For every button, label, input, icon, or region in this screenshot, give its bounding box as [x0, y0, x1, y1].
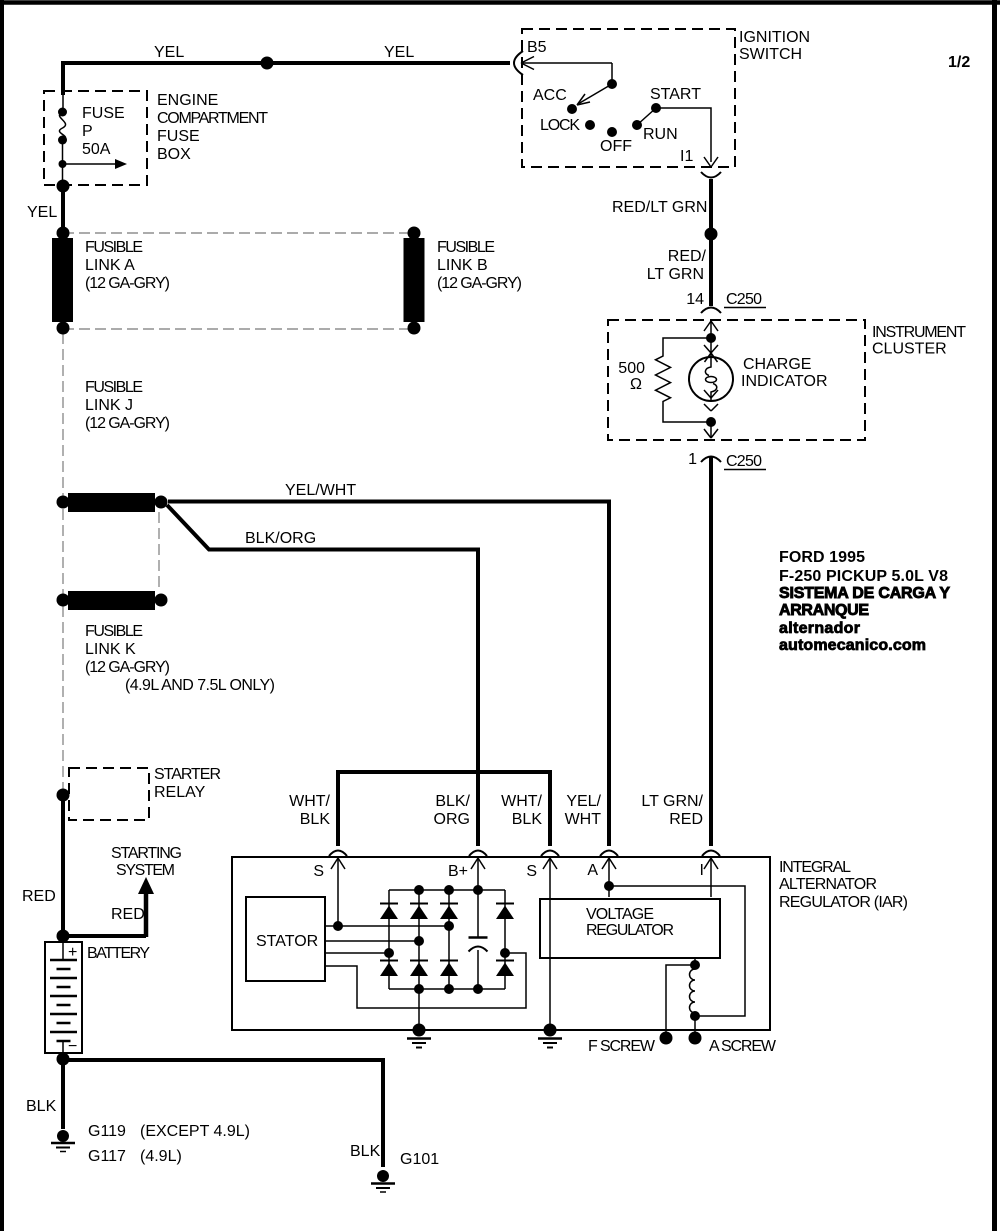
svg-text:C250: C250 [726, 453, 762, 470]
svg-text:LINK K: LINK K [85, 641, 136, 658]
svg-text:I1: I1 [680, 148, 693, 165]
svg-text:G101: G101 [400, 1151, 439, 1168]
svg-text:STATOR: STATOR [256, 933, 318, 950]
svg-text:FUSE: FUSE [157, 128, 200, 145]
svg-text:RUN: RUN [643, 126, 678, 143]
svg-text:START: START [650, 86, 701, 103]
svg-text:SWITCH: SWITCH [739, 46, 802, 63]
svg-text:1: 1 [688, 451, 697, 468]
svg-text:LINK B: LINK B [437, 257, 488, 274]
svg-text:BLK/: BLK/ [435, 793, 470, 810]
svg-text:B5: B5 [527, 39, 547, 56]
svg-text:BLK: BLK [26, 1098, 57, 1115]
svg-text:P: P [82, 123, 93, 140]
svg-text:OFF: OFF [600, 138, 632, 155]
svg-text:(12 GA-GRY): (12 GA-GRY) [85, 275, 170, 292]
svg-text:ENGINE: ENGINE [157, 92, 218, 109]
svg-text:BLK/ORG: BLK/ORG [245, 530, 316, 547]
svg-text:FORD 1995: FORD 1995 [779, 549, 865, 566]
svg-text:STARTER: STARTER [154, 766, 221, 783]
svg-text:FUSIBLE: FUSIBLE [85, 379, 143, 396]
svg-text:VOLTAGE: VOLTAGE [586, 906, 654, 923]
svg-text:A: A [587, 862, 598, 879]
svg-text:WHT/: WHT/ [501, 793, 542, 810]
svg-text:(12 GA-GRY): (12 GA-GRY) [85, 659, 170, 676]
svg-text:LINK A: LINK A [85, 257, 135, 274]
svg-text:REGULATOR (IAR): REGULATOR (IAR) [779, 894, 908, 911]
svg-text:COMPARTMENT: COMPARTMENT [157, 110, 268, 127]
svg-text:LT GRN/: LT GRN/ [641, 793, 703, 810]
svg-text:YEL: YEL [27, 204, 57, 221]
svg-text:LINK J: LINK J [85, 397, 133, 414]
svg-text:RELAY: RELAY [154, 784, 206, 801]
svg-text:I: I [700, 862, 704, 879]
svg-text:ALTERNATOR: ALTERNATOR [779, 876, 877, 893]
svg-text:(4.9L): (4.9L) [140, 1148, 182, 1165]
svg-text:ARRANQUE: ARRANQUE [779, 602, 869, 619]
svg-text:(EXCEPT 4.9L): (EXCEPT 4.9L) [140, 1123, 250, 1140]
svg-text:BLK: BLK [512, 811, 543, 828]
svg-text:G119: G119 [88, 1123, 126, 1140]
svg-text:LT GRN: LT GRN [647, 266, 704, 283]
svg-text:Ω: Ω [630, 376, 642, 393]
svg-text:BLK: BLK [350, 1143, 381, 1160]
svg-text:F-250 PICKUP 5.0L V8: F-250 PICKUP 5.0L V8 [779, 568, 948, 585]
svg-text:CHARGE: CHARGE [743, 356, 811, 373]
svg-text:FUSIBLE: FUSIBLE [85, 623, 143, 640]
svg-text:CLUSTER: CLUSTER [872, 341, 947, 358]
svg-text:ORG: ORG [434, 811, 470, 828]
svg-text:1/2: 1/2 [948, 54, 970, 71]
svg-text:BOX: BOX [157, 146, 191, 163]
svg-text:F SCREW: F SCREW [588, 1038, 656, 1055]
svg-text:LOCK: LOCK [540, 117, 580, 134]
svg-text:G117: G117 [88, 1148, 126, 1165]
svg-text:RED: RED [22, 888, 56, 905]
svg-text:A SCREW: A SCREW [709, 1038, 777, 1055]
svg-text:14: 14 [686, 291, 704, 308]
svg-text:YEL/: YEL/ [566, 793, 601, 810]
svg-text:RED/LT GRN: RED/LT GRN [612, 199, 707, 216]
svg-text:SISTEMA DE CARGA Y: SISTEMA DE CARGA Y [779, 585, 950, 602]
svg-text:−: − [68, 1038, 77, 1055]
svg-text:STARTING: STARTING [111, 845, 182, 862]
svg-text:IGNITION: IGNITION [739, 29, 810, 46]
svg-text:YEL: YEL [154, 44, 184, 61]
svg-text:SYSTEM: SYSTEM [116, 862, 175, 879]
svg-text:S: S [526, 863, 537, 880]
svg-text:YEL: YEL [384, 44, 414, 61]
svg-text:INSTRUMENT: INSTRUMENT [872, 324, 966, 341]
svg-text:(4.9L AND 7.5L ONLY): (4.9L AND 7.5L ONLY) [125, 677, 275, 694]
svg-text:BATTERY: BATTERY [87, 945, 150, 962]
svg-text:YEL/WHT: YEL/WHT [285, 482, 356, 499]
svg-text:INTEGRAL: INTEGRAL [779, 859, 851, 876]
svg-text:C250: C250 [726, 291, 762, 308]
svg-text:(12 GA-GRY): (12 GA-GRY) [85, 415, 170, 432]
svg-text:WHT/: WHT/ [289, 793, 330, 810]
svg-text:(12 GA-GRY): (12 GA-GRY) [437, 275, 522, 292]
svg-text:FUSE: FUSE [82, 105, 125, 122]
svg-text:FUSIBLE: FUSIBLE [437, 239, 495, 256]
svg-text:50A: 50A [82, 141, 111, 158]
svg-text:ACC: ACC [533, 87, 567, 104]
svg-text:alternador: alternador [779, 620, 860, 637]
svg-text:RED: RED [111, 906, 145, 923]
svg-text:INDICATOR: INDICATOR [741, 373, 828, 390]
svg-text:500: 500 [618, 360, 645, 377]
svg-text:RED/: RED/ [668, 248, 707, 265]
svg-text:RED: RED [669, 811, 703, 828]
svg-text:FUSIBLE: FUSIBLE [85, 239, 143, 256]
svg-text:BLK: BLK [300, 811, 331, 828]
svg-text:B+: B+ [448, 863, 468, 880]
svg-text:S: S [313, 863, 324, 880]
svg-text:+: + [68, 944, 77, 961]
svg-text:REGULATOR: REGULATOR [586, 922, 674, 939]
svg-text:WHT: WHT [565, 811, 602, 828]
svg-text:automecanico.com: automecanico.com [779, 637, 926, 654]
